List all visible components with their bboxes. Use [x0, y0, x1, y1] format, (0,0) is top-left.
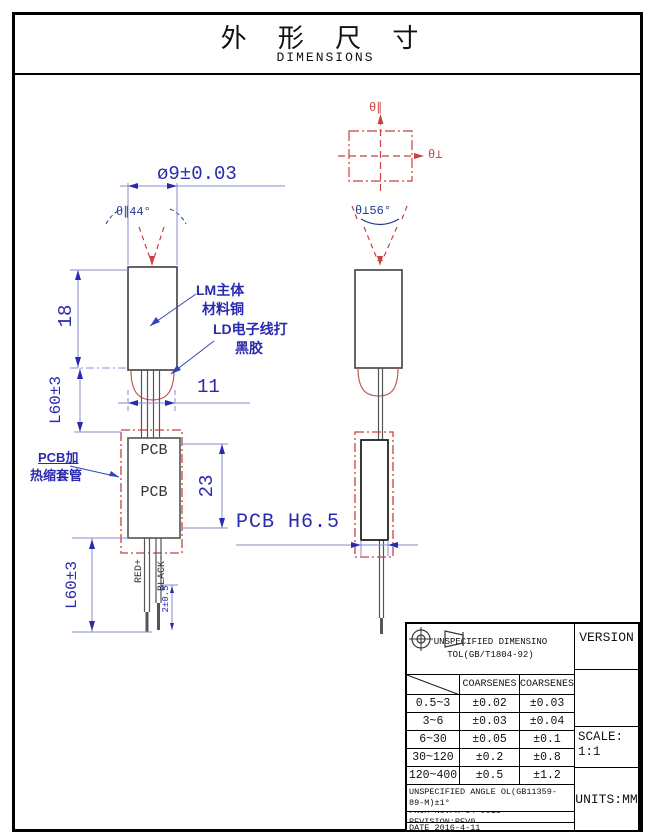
tol-row-tol2: ±0.1	[520, 731, 574, 749]
tolerance-table-right: VERSION SCALE:1:1 UNITS:MM	[574, 624, 638, 830]
tolerance-col2-header: COARSENES	[520, 675, 574, 695]
side-view-outline	[355, 270, 402, 368]
glue-label: LD电子线打 黑胶	[213, 320, 288, 358]
glue-label-line1: LD电子线打	[213, 320, 288, 339]
axis-symbol-arrows	[378, 114, 425, 159]
units-label: UNITS:MM	[575, 768, 638, 830]
dim-diameter-label: ø9±0.03	[157, 163, 237, 185]
front-beam-angle-label: θ∥44°	[116, 204, 151, 219]
side-view-dim-lines	[236, 540, 418, 556]
front-view-beam-angle	[139, 227, 164, 261]
dim-width-label: 11	[197, 376, 220, 398]
pcb-text-top: PCB	[128, 442, 180, 459]
diagonal-line	[407, 675, 460, 695]
axis-parallel-label: θ∥	[369, 100, 382, 115]
tol-row-tol2: ±0.03	[520, 695, 574, 713]
tolerance-col1-header: COARSENES	[460, 675, 520, 695]
tol-row-tol1: ±0.02	[460, 695, 520, 713]
drawing-page: 外 形 尺 寸 DIMENSIONS	[0, 0, 651, 839]
axis-symbol	[338, 118, 421, 192]
tol-row-range: 120~400	[407, 767, 460, 785]
wire-positive-label: RED+	[133, 549, 145, 593]
dim-pcb-height-label: 23	[197, 466, 217, 506]
sleeve-label: PCB加 热缩套管	[30, 449, 82, 484]
dim-lead-upper-label: L60±3	[47, 368, 65, 432]
glue-label-line2: 黑胶	[213, 339, 288, 358]
angle-tolerance-note: UNSPECIFIED ANGLE OL(GB11359-89-M)±1°	[407, 785, 574, 812]
tol-row-tol1: ±0.5	[460, 767, 520, 785]
front-view-beam-arrow	[149, 256, 155, 266]
dim-pcb-width-label: PCB H6.5	[236, 511, 340, 534]
side-view-angle-arc	[361, 219, 399, 225]
dim-wire-tip-label: 2±0.5	[161, 579, 171, 619]
sleeve-label-line1: PCB加	[30, 449, 82, 467]
tol-row-range: 0.5~3	[407, 695, 460, 713]
tol-row-tol1: ±0.03	[460, 713, 520, 731]
front-view-dome	[131, 370, 174, 400]
side-view-pcb-outline	[361, 440, 388, 540]
tolerance-table: UNSPECIFIED DIMENSINO TOL(GB/T1804-92) C…	[405, 622, 640, 832]
axis-perp-label: θ⊥	[428, 147, 442, 162]
tol-row-tol2: ±1.2	[520, 767, 574, 785]
sleeve-label-line2: 热缩套管	[30, 467, 82, 485]
front-view-wires	[142, 370, 160, 438]
tol-row-range: 6~30	[407, 731, 460, 749]
front-view-dim-lines	[70, 183, 285, 632]
document-number-note: FROM NO:FR-04-0013 REVISION:REV0	[407, 812, 574, 823]
tol-row-tol2: ±0.04	[520, 713, 574, 731]
front-view-outline	[128, 267, 177, 370]
tol-row-tol1: ±0.05	[460, 731, 520, 749]
dim-body-height-label: 18	[56, 296, 76, 336]
body-material-line1: LM主体	[196, 281, 244, 300]
body-material-label: LM主体 材料铜	[196, 281, 244, 319]
tol-row-tol2: ±0.8	[520, 749, 574, 767]
tol-row-range: 3~6	[407, 713, 460, 731]
side-beam-angle-label: θ⊥56°	[355, 203, 391, 218]
version-label: VERSION	[575, 624, 638, 670]
projection-symbol-cell	[575, 670, 638, 727]
side-view-wires	[379, 368, 384, 634]
body-material-line2: 材料铜	[196, 300, 244, 319]
date-note: DATE 2016-4-11	[407, 823, 574, 834]
dim-lead-lower-label: L60±3	[63, 553, 81, 617]
tolerance-table-left: UNSPECIFIED DIMENSINO TOL(GB/T1804-92) C…	[407, 624, 574, 830]
tol-row-tol1: ±0.2	[460, 749, 520, 767]
tol-row-range: 30~120	[407, 749, 460, 767]
scale-label: SCALE:1:1	[575, 727, 638, 768]
tolerance-table-diagonal-cell	[407, 675, 460, 695]
pcb-text-bottom: PCB	[128, 484, 180, 501]
